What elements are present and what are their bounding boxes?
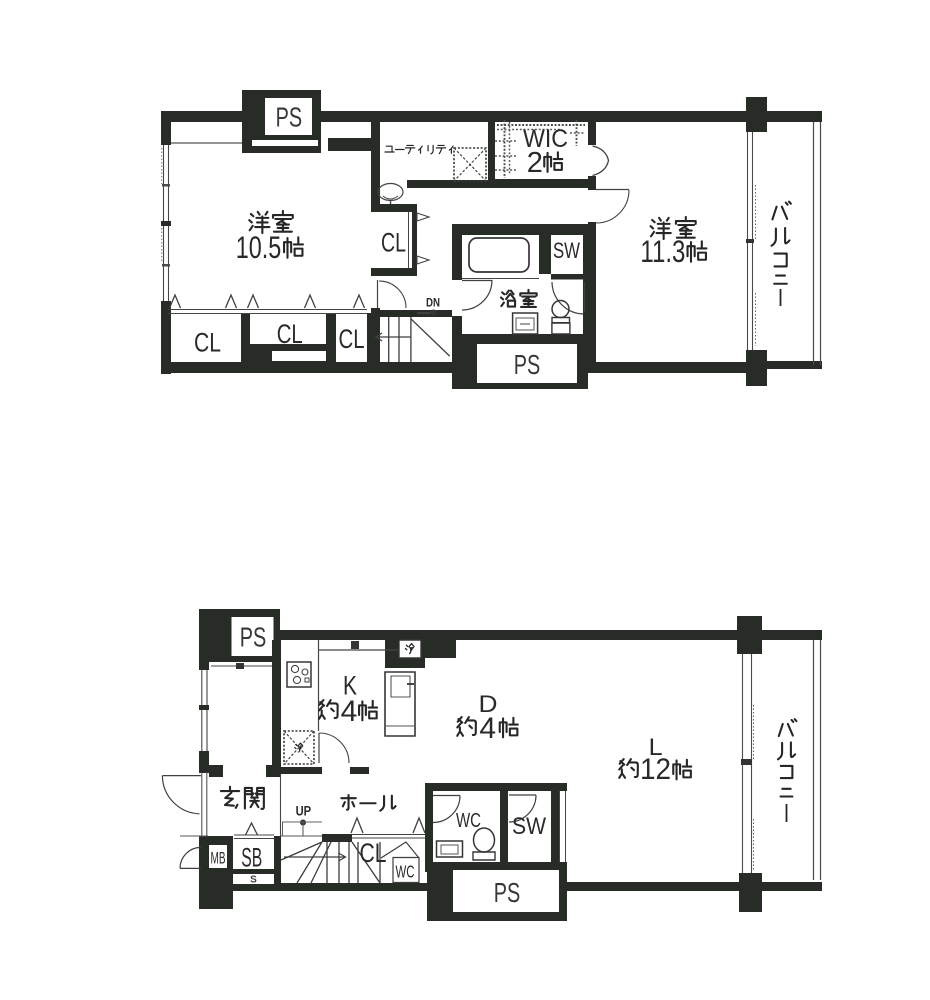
svg-text:SW: SW [512, 813, 546, 840]
svg-text:UP: UP [296, 804, 312, 819]
svg-text:PS: PS [276, 102, 303, 133]
svg-text:11.3: 11.3 [640, 233, 685, 269]
svg-text:DN: DN [426, 296, 440, 310]
svg-text:CL: CL [339, 324, 365, 354]
svg-text:SW: SW [553, 238, 580, 263]
svg-text:CL: CL [277, 319, 303, 349]
svg-text:CL: CL [360, 838, 387, 868]
svg-text:4: 4 [479, 712, 496, 745]
svg-text:S: S [250, 875, 257, 886]
svg-text:WC: WC [456, 810, 481, 832]
svg-text:PS: PS [514, 349, 541, 380]
svg-text:WC: WC [396, 862, 415, 882]
svg-text:MB: MB [211, 850, 226, 868]
svg-text:2: 2 [527, 147, 543, 179]
svg-text:CL: CL [194, 328, 221, 358]
svg-text:PS: PS [494, 877, 521, 908]
svg-text:SB: SB [241, 843, 262, 873]
svg-text:4: 4 [341, 695, 358, 728]
svg-text:CL: CL [381, 228, 406, 258]
svg-text:10.5: 10.5 [236, 229, 281, 265]
svg-text:12: 12 [640, 753, 671, 786]
svg-text:PS: PS [240, 622, 266, 653]
